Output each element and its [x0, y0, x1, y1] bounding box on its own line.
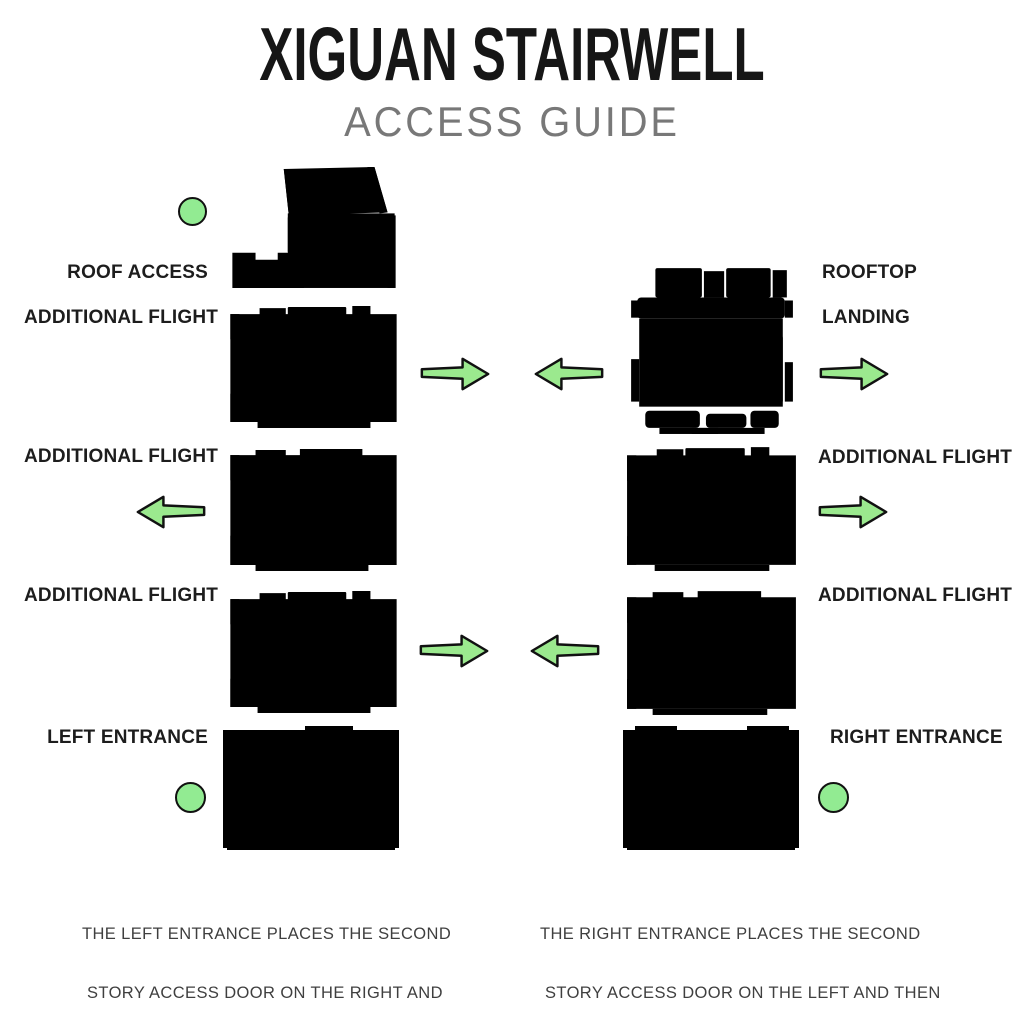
left-entrance-building — [217, 722, 405, 856]
page-subtitle: ACCESS GUIDE — [26, 98, 999, 146]
roof-access-marker-circle — [178, 197, 207, 226]
right-flight-2-building — [623, 585, 801, 716]
mid-row3-arrow-left-icon — [528, 633, 602, 669]
page-title: XIGUAN STAIRWELL — [164, 18, 860, 90]
left-entrance-marker-circle — [175, 782, 206, 813]
label-roof-access: ROOF ACCESS — [24, 262, 208, 284]
footnote-line: THE LEFT ENTRANCE PLACES THE SECOND — [82, 925, 461, 945]
label-right-entrance: RIGHT ENTRANCE — [830, 727, 1003, 749]
footnote-line: STORY ACCESS DOOR ON THE LEFT AND THEN — [540, 984, 946, 1004]
left-flight-1-building — [227, 300, 401, 429]
footnote-line: STORY ACCESS DOOR ON THE RIGHT AND — [82, 984, 461, 1004]
mid-row3-arrow-right-icon — [417, 633, 491, 669]
label-left-additional-flight-1: ADDITIONAL FLIGHT — [24, 307, 208, 329]
label-left-additional-flight-3: ADDITIONAL FLIGHT — [24, 585, 208, 607]
label-left-entrance: LEFT ENTRANCE — [24, 727, 208, 749]
label-landing: LANDING — [822, 307, 910, 329]
footnote-line: THE RIGHT ENTRANCE PLACES THE SECOND — [540, 925, 946, 945]
left-flight-2-building — [227, 443, 401, 572]
left-flight-3-building — [227, 585, 401, 714]
left-roof-access-building — [227, 163, 401, 292]
left-entrance-footnote: THE LEFT ENTRANCE PLACES THE SECOND STOR… — [82, 886, 461, 1024]
label-left-additional-flight-2: ADDITIONAL FLIGHT — [24, 446, 208, 468]
left-row2-arrow-left-icon — [134, 494, 208, 530]
label-right-additional-flight-2: ADDITIONAL FLIGHT — [818, 585, 1012, 607]
right-row2-arrow-right-icon — [816, 494, 890, 530]
mid-row1-arrow-left-icon — [532, 356, 606, 392]
right-row1-arrow-right-icon — [817, 356, 891, 392]
right-flight-1-building — [623, 441, 801, 572]
label-rooftop: ROOFTOP — [822, 262, 917, 284]
mid-row1-arrow-right-icon — [418, 356, 492, 392]
right-entrance-marker-circle — [818, 782, 849, 813]
infographic-page: XIGUAN STAIRWELL ACCESS GUIDE ROOF ACCES… — [0, 0, 1024, 1024]
right-entrance-building — [617, 722, 805, 856]
right-entrance-footnote: THE RIGHT ENTRANCE PLACES THE SECOND STO… — [540, 886, 946, 1024]
label-right-additional-flight-1: ADDITIONAL FLIGHT — [818, 447, 1012, 469]
right-rooftop-landing-building — [621, 258, 801, 436]
